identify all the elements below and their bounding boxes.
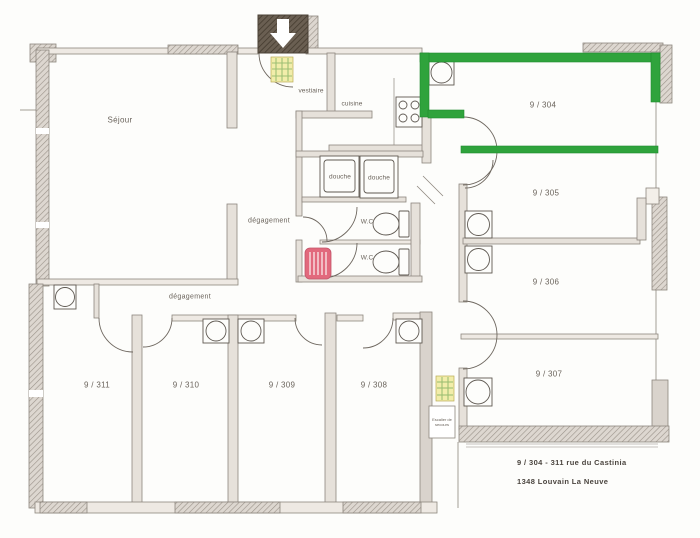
washbasin-icon-305 [465,211,492,238]
wall-sejour-right-upper [227,52,237,128]
highlight-left-bar [420,53,429,117]
wall-sejour-right-lower [227,204,237,282]
highlight-stub-bar [428,110,464,118]
wall-vestiaire-bottom [296,111,372,118]
wall-funnel-1 [423,176,443,196]
washbasin-icon-310 [203,319,229,343]
wall-top-gap [238,48,258,54]
label-cuisine: cuisine [342,101,363,108]
wall-306-307-divider [461,334,658,339]
washbasin-icon-308 [396,319,422,343]
label-room-311: 9 / 311 [84,381,110,390]
wall-311-nook [94,284,99,318]
label-degagement-lower: dégagement [169,294,211,301]
wall-wc-divider [320,240,420,244]
label-degagement-upper: dégagement [248,218,290,225]
washbasin-icon-311 [54,285,76,309]
wall-305-306-divider [463,238,640,244]
label-room-306: 9 / 306 [533,278,560,287]
wall-top-right-window [583,43,663,52]
label-sejour: Séjour [108,116,133,125]
doormat-icon-exit [436,376,454,401]
wall-wc-right [411,203,420,277]
wall-sejour-left [36,50,49,286]
wall-right-corner [660,45,672,103]
label-wc-top: W.C [361,219,374,226]
wall-funnel-2 [417,186,435,204]
door-arc-wc-top [322,207,357,242]
wall-vestiaire-right [327,53,335,113]
door-arc-309 [295,318,322,345]
washbasin-icon-304 [429,60,454,85]
label-room-304: 9 / 304 [530,101,557,110]
wall-corridor-top [37,279,238,285]
label-douche-left: douche [329,174,351,181]
wall-top-mid [306,48,422,54]
wall-rooms-top-2 [337,315,363,321]
wall-bottom-window-3 [343,502,421,513]
wall-bottom-window-1 [40,502,87,513]
label-vestiaire: vestiaire [298,88,323,95]
washbasin-icon-307 [464,378,492,406]
wall-309-308-divider [325,313,336,503]
label-room-307: 9 / 307 [536,370,563,379]
door-arc-310 [143,318,172,347]
doormat-icon-entrance [271,57,293,82]
radiator-icon [305,248,331,279]
wall-311-310-divider [132,315,142,509]
wall-douche-top [296,151,423,157]
wall-310-309-divider [228,315,238,509]
door-arc-308 [363,318,393,348]
window-sill [29,390,43,397]
window-sill [36,222,49,228]
label-room-305: 9 / 305 [533,189,560,198]
toilet-icon-bottom [373,249,409,275]
label-wc-bottom: W.C [361,255,374,262]
label-douche-right: douche [368,175,390,182]
address-line-2: 1348 Louvain La Neuve [517,477,608,486]
wall-lobby-left-upper [296,111,302,216]
wall-307-bottom [459,426,669,442]
wall-bottom-window-2 [175,502,280,513]
washbasin-icon-306 [465,246,492,273]
highlight-middle-bar [461,146,658,153]
wall-divider-elbow [637,198,646,240]
stove-icon [396,97,422,127]
highlight-top-bar [420,53,660,62]
door-arc-lobby [303,217,327,241]
label-room-309: 9 / 309 [269,381,296,390]
toilet-icon-top [373,211,409,237]
washbasin-icon-309 [238,319,264,343]
window-sill [36,128,49,134]
wall-fixture-box [646,188,659,204]
entrance [258,15,308,53]
label-emergency-exit: Escalier de secours [430,408,454,436]
label-room-310: 9 / 310 [173,381,200,390]
door-arc-311 [99,318,133,352]
label-room-308: 9 / 308 [361,381,388,390]
wall-right-elbow [652,380,668,428]
floorplan-page: Séjour vestiaire cuisine douche douche W… [0,0,700,538]
address-line-1: 9 / 304 - 311 rue du Castinia [517,458,627,467]
wall-right-window [652,197,667,290]
door-arc-305 [465,160,493,188]
highlight-right-bar [651,53,660,102]
walls [20,16,672,513]
